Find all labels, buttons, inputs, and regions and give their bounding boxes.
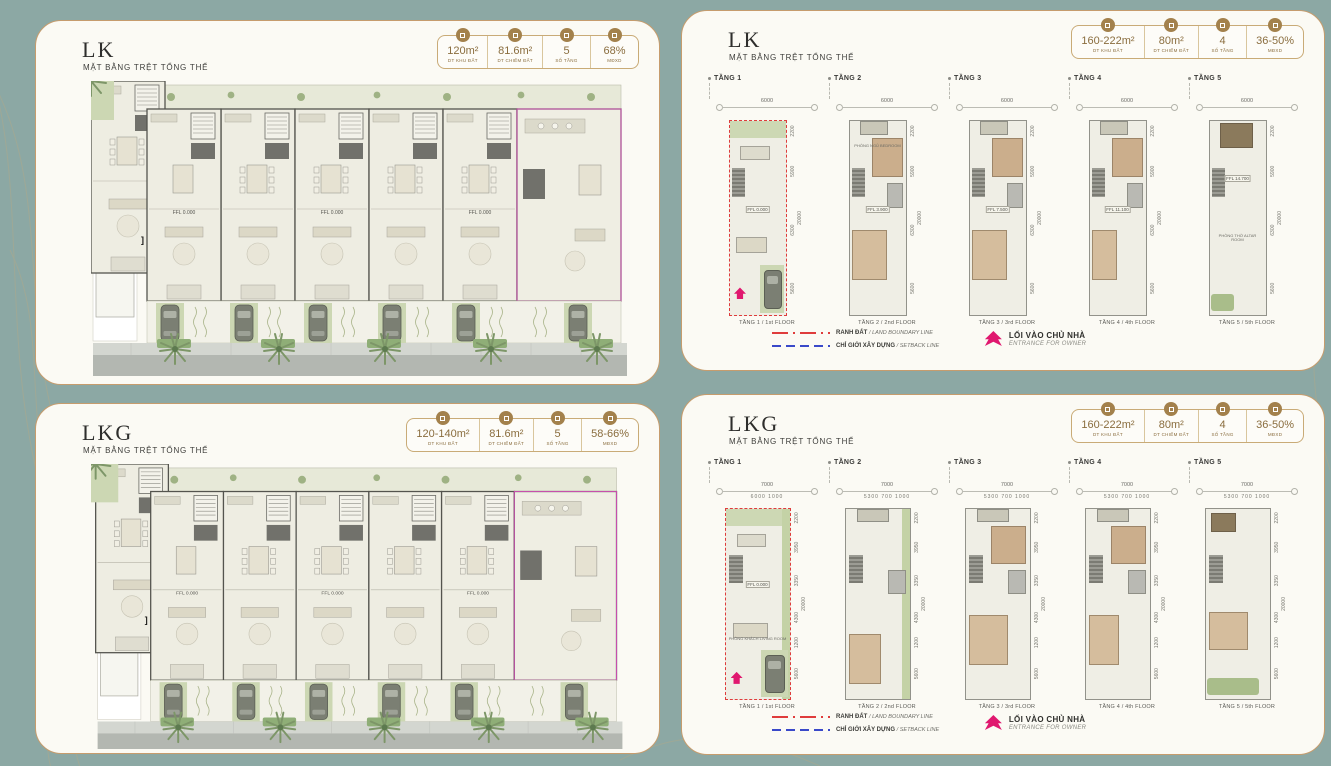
panel-title: LK [82, 37, 115, 63]
panel-subtitle: MẶT BẰNG TRỆT TỔNG THỂ [729, 53, 854, 62]
floor-column-1: TẦNG 1 6000 FFL 0.000 2200 5900 6300 560… [708, 73, 826, 326]
stats-strip: 160-222m² DT KHU ĐẤT 80m² DT CHIẾM ĐẤT 4… [1071, 409, 1304, 443]
land-area-icon [436, 411, 450, 425]
stats-strip: 120m² DT KHU ĐẤT 81.6m² DT CHIẾM ĐẤT 5 S… [437, 35, 639, 69]
stat-footprint-area: 81.6m² DT CHIẾM ĐẤT [487, 36, 542, 68]
stats-strip: 120-140m² DT KHU ĐẤT 81.6m² DT CHIẾM ĐẤT… [406, 418, 639, 452]
floor-column-4: TẦNG 4 6000 FFL 11.100 2200 5900 6300 56… [1068, 73, 1186, 326]
legend-boundary-line: RANH ĐẤT / LAND BOUNDARY LINE [772, 330, 939, 336]
legend-entrance: LỐI VÀO CHỦ NHÀ ENTRANCE FOR OWNER [985, 715, 1086, 731]
stat-footprint-area: 81.6m² DT CHIẾM ĐẤT [479, 419, 534, 451]
side-dimensions: 2200 3950 3350 4300 1200 5600 [791, 508, 801, 700]
stat-footprint-area: 80m² DT CHIẾM ĐẤT [1144, 26, 1199, 58]
floor-plan-drawing: FFL 0.000 [729, 120, 787, 316]
stat-floor-count: 5 SỐ TẦNG [533, 419, 581, 451]
stat-floor-count: 4 SỐ TẦNG [1198, 26, 1246, 58]
setback-line-swatch [772, 345, 830, 347]
build-density-icon [1268, 402, 1282, 416]
stat-floor-count: 5 SỐ TẦNG [542, 36, 590, 68]
legend-setback-line: CHỈ GIỚI XÂY DỰNG / SETBACK LINE [772, 727, 939, 733]
floor-plan-drawing: FFL 7.500 [969, 120, 1027, 316]
svg-text:FFL 0.000: FFL 0.000 [173, 210, 196, 216]
entrance-icon [985, 715, 1002, 730]
footprint-area-icon [1164, 18, 1178, 32]
panel-lk-floorplans: LK MẶT BẰNG TRỆT TỔNG THỂ 160-222m² DT K… [681, 10, 1325, 371]
land-area-icon [1101, 18, 1115, 32]
land-area-icon [456, 28, 470, 42]
floor-plan-drawing [965, 508, 1031, 700]
floor-count-icon [1216, 402, 1230, 416]
land-area-icon [1101, 402, 1115, 416]
floor-column-2: TẦNG 2 6000 PHÒNG NGỦ BEDROOM FFL 3.900 … [828, 73, 946, 326]
legend-setback-line: CHỈ GIỚI XÂY DỰNG / SETBACK LINE [772, 343, 939, 349]
floor-plan-drawing [845, 508, 911, 700]
setback-line-swatch [772, 729, 830, 731]
entrance-icon [985, 331, 1002, 346]
panel-lk-siteplan: LK MẶT BẰNG TRỆT TỔNG THỂ 120m² DT KHU Đ… [35, 20, 660, 385]
stat-density: 36-50% MĐXD [1246, 410, 1303, 442]
panel-subtitle: MẶT BẰNG TRỆT TỔNG THỂ [83, 63, 208, 72]
floor-plan-drawing [1205, 508, 1271, 700]
floor-count-icon [551, 411, 565, 425]
floor-plans-row: TẦNG 1 6000 FFL 0.000 2200 5900 6300 560… [708, 73, 1306, 326]
floor-column-4: TẦNG 4 7000 5300 700 1000 2200 3950 3350… [1068, 457, 1186, 710]
panel-lkg-floorplans: LKG MẶT BẰNG TRỆT TỔNG THỂ 160-222m² DT … [681, 394, 1325, 755]
boundary-line-swatch [772, 332, 830, 334]
floor-plans-row: TẦNG 1 7000 6000 1000 PHÒNG KHÁCH LIVING… [708, 457, 1306, 710]
floor-column-5: TẦNG 5 6000 PHÒNG THỜ ALTAR ROOM FFL 14.… [1188, 73, 1306, 326]
svg-text:FFL 0.000: FFL 0.000 [321, 210, 344, 216]
floor-count-icon [560, 28, 574, 42]
floor-plan-drawing: PHÒNG NGỦ BEDROOM FFL 3.900 [849, 120, 907, 316]
entrance-arrow-icon [731, 672, 743, 684]
stat-density: 68% MĐXD [590, 36, 638, 68]
stat-footprint-area: 80m² DT CHIẾM ĐẤT [1144, 410, 1199, 442]
legend-entrance: LỐI VÀO CHỦ NHÀ ENTRANCE FOR OWNER [985, 331, 1086, 347]
footprint-area-icon [508, 28, 522, 42]
footprint-area-icon [1164, 402, 1178, 416]
svg-text:]: ] [141, 235, 144, 245]
stat-land-area: 120m² DT KHU ĐẤT [438, 36, 487, 68]
side-dimensions: 2200 5900 6300 5600 [787, 120, 797, 316]
floor-plan-drawing: PHÒNG KHÁCH LIVING ROOM FFL 0.000 [725, 508, 791, 700]
floor-caption: TẦNG 1 / 1st FLOOR [739, 320, 795, 326]
site-plan-drawing [91, 464, 631, 749]
footprint-area-icon [499, 411, 513, 425]
legend-boundary-line: RANH ĐẤT / LAND BOUNDARY LINE [772, 714, 939, 720]
floor-plan-drawing [1085, 508, 1151, 700]
stat-land-area: 160-222m² DT KHU ĐẤT [1072, 26, 1143, 58]
panel-subtitle: MẶT BẰNG TRỆT TỔNG THỂ [83, 446, 208, 455]
floor-column-5: TẦNG 5 7000 5300 700 1000 2200 3950 3350… [1188, 457, 1306, 710]
stat-land-area: 160-222m² DT KHU ĐẤT [1072, 410, 1143, 442]
panel-lkg-siteplan: LKG MẶT BẰNG TRỆT TỔNG THỂ 120-140m² DT … [35, 403, 660, 754]
panel-title: LKG [82, 420, 133, 446]
floor-count-icon [1216, 18, 1230, 32]
legend: RANH ĐẤT / LAND BOUNDARY LINE CHỈ GIỚI X… [742, 328, 1294, 364]
floor-plan-drawing: PHÒNG THỜ ALTAR ROOM FFL 14.700 [1209, 120, 1267, 316]
build-density-icon [1268, 18, 1282, 32]
floor-column-2: TẦNG 2 7000 5300 700 1000 2200 3950 3350… [828, 457, 946, 710]
panel-subtitle: MẶT BẰNG TRỆT TỔNG THỂ [729, 437, 854, 446]
dimension-line: 6000 [716, 99, 817, 112]
floor-plan-drawing: FFL 11.100 [1089, 120, 1147, 316]
legend: RANH ĐẤT / LAND BOUNDARY LINE CHỈ GIỚI X… [742, 712, 1294, 748]
floor-column-3: TẦNG 3 6000 FFL 7.500 2200 5900 6300 560… [948, 73, 1066, 326]
build-density-icon [603, 411, 617, 425]
site-plan-drawing: FFL 0.000 FFL 0.000 FFL 0.000 [91, 81, 631, 376]
stats-strip: 160-222m² DT KHU ĐẤT 80m² DT CHIẾM ĐẤT 4… [1071, 25, 1304, 59]
floor-column-1: TẦNG 1 7000 6000 1000 PHÒNG KHÁCH LIVING… [708, 457, 826, 710]
svg-text:FFL 0.000: FFL 0.000 [469, 210, 492, 216]
floor-label: TẦNG 1 [714, 75, 741, 82]
entrance-arrow-icon [734, 287, 746, 299]
stat-land-area: 120-140m² DT KHU ĐẤT [407, 419, 478, 451]
stat-density: 36-50% MĐXD [1246, 26, 1303, 58]
stat-floor-count: 4 SỐ TẦNG [1198, 410, 1246, 442]
build-density-icon [608, 28, 622, 42]
boundary-line-swatch [772, 716, 830, 718]
floor-column-3: TẦNG 3 7000 5300 700 1000 2200 3950 3350… [948, 457, 1066, 710]
panel-title: LKG [728, 411, 779, 437]
stat-density: 58-66% MĐXD [581, 419, 638, 451]
panel-title: LK [728, 27, 761, 53]
